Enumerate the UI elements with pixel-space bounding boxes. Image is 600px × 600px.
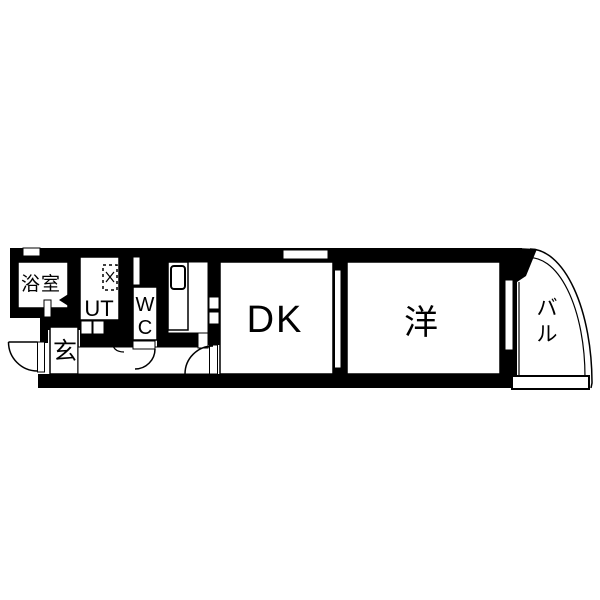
kitchen-wall-opening-lower — [209, 312, 219, 324]
utility-label: UT — [84, 296, 113, 321]
balcony-window-icon — [505, 280, 513, 350]
dk-label: DK — [247, 299, 304, 341]
entrance-wall-stub — [40, 316, 48, 343]
dk-window-icon — [283, 250, 328, 259]
kitchen-south-wall — [157, 333, 198, 347]
entrance-label: 玄 — [53, 338, 77, 365]
bathroom-door-opening — [44, 300, 51, 317]
balcony-label-1: バ — [537, 297, 558, 320]
floor-plan: 浴室 UT W C 玄 DK 洋 バ ル — [0, 0, 600, 600]
bottom-wall — [38, 374, 512, 388]
shoe-cabinet — [112, 329, 124, 343]
balcony-corner-wall — [517, 248, 537, 282]
western-room-label: 洋 — [404, 304, 438, 342]
corridor-kitchen-gap — [198, 333, 208, 348]
sliding-door-icon — [335, 270, 342, 368]
kitchen-sink-icon — [171, 266, 185, 289]
left-wall — [10, 248, 18, 318]
bathroom-label: 浴室 — [21, 273, 61, 295]
pipe-space — [133, 257, 140, 285]
wc-label-w: W — [136, 294, 155, 316]
corridor — [78, 347, 210, 374]
floor-plan-canvas: 浴室 UT W C 玄 DK 洋 バ ル — [0, 0, 600, 600]
wc-label-c: C — [138, 317, 152, 339]
kitchen-wall-opening-upper — [209, 297, 219, 309]
wc-door-leaf — [133, 341, 155, 349]
entrance-door-leaf — [38, 342, 45, 372]
bathroom-vent-window-icon — [23, 248, 40, 256]
entrance-door-swing-arc — [9, 342, 38, 371]
dk-door-leaf — [210, 345, 218, 374]
balcony-label-2: ル — [537, 323, 558, 346]
balcony-floor-slab — [512, 376, 589, 389]
utility-door-panel-left — [81, 321, 92, 334]
utility-door-panel-right — [93, 321, 104, 334]
